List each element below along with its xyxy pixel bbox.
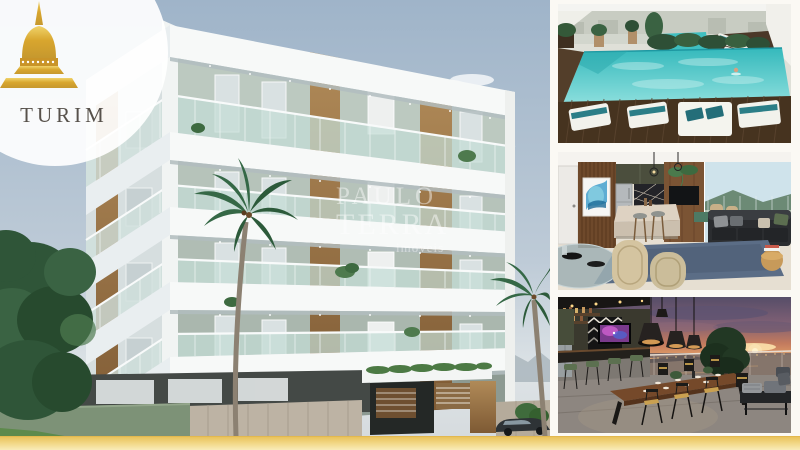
brand-name: TURIM xyxy=(0,103,128,128)
thumb-living-room xyxy=(558,152,791,290)
building-render-photo: TURIM PAULO TERRA imóveis xyxy=(0,0,550,437)
listing-collage: TURIM PAULO TERRA imóveis xyxy=(0,0,800,450)
thumb-rooftop-pool xyxy=(558,4,791,143)
gold-accent-bar xyxy=(0,436,800,450)
thumb-rooftop-terrace xyxy=(558,297,791,433)
pagoda-icon xyxy=(0,0,78,96)
